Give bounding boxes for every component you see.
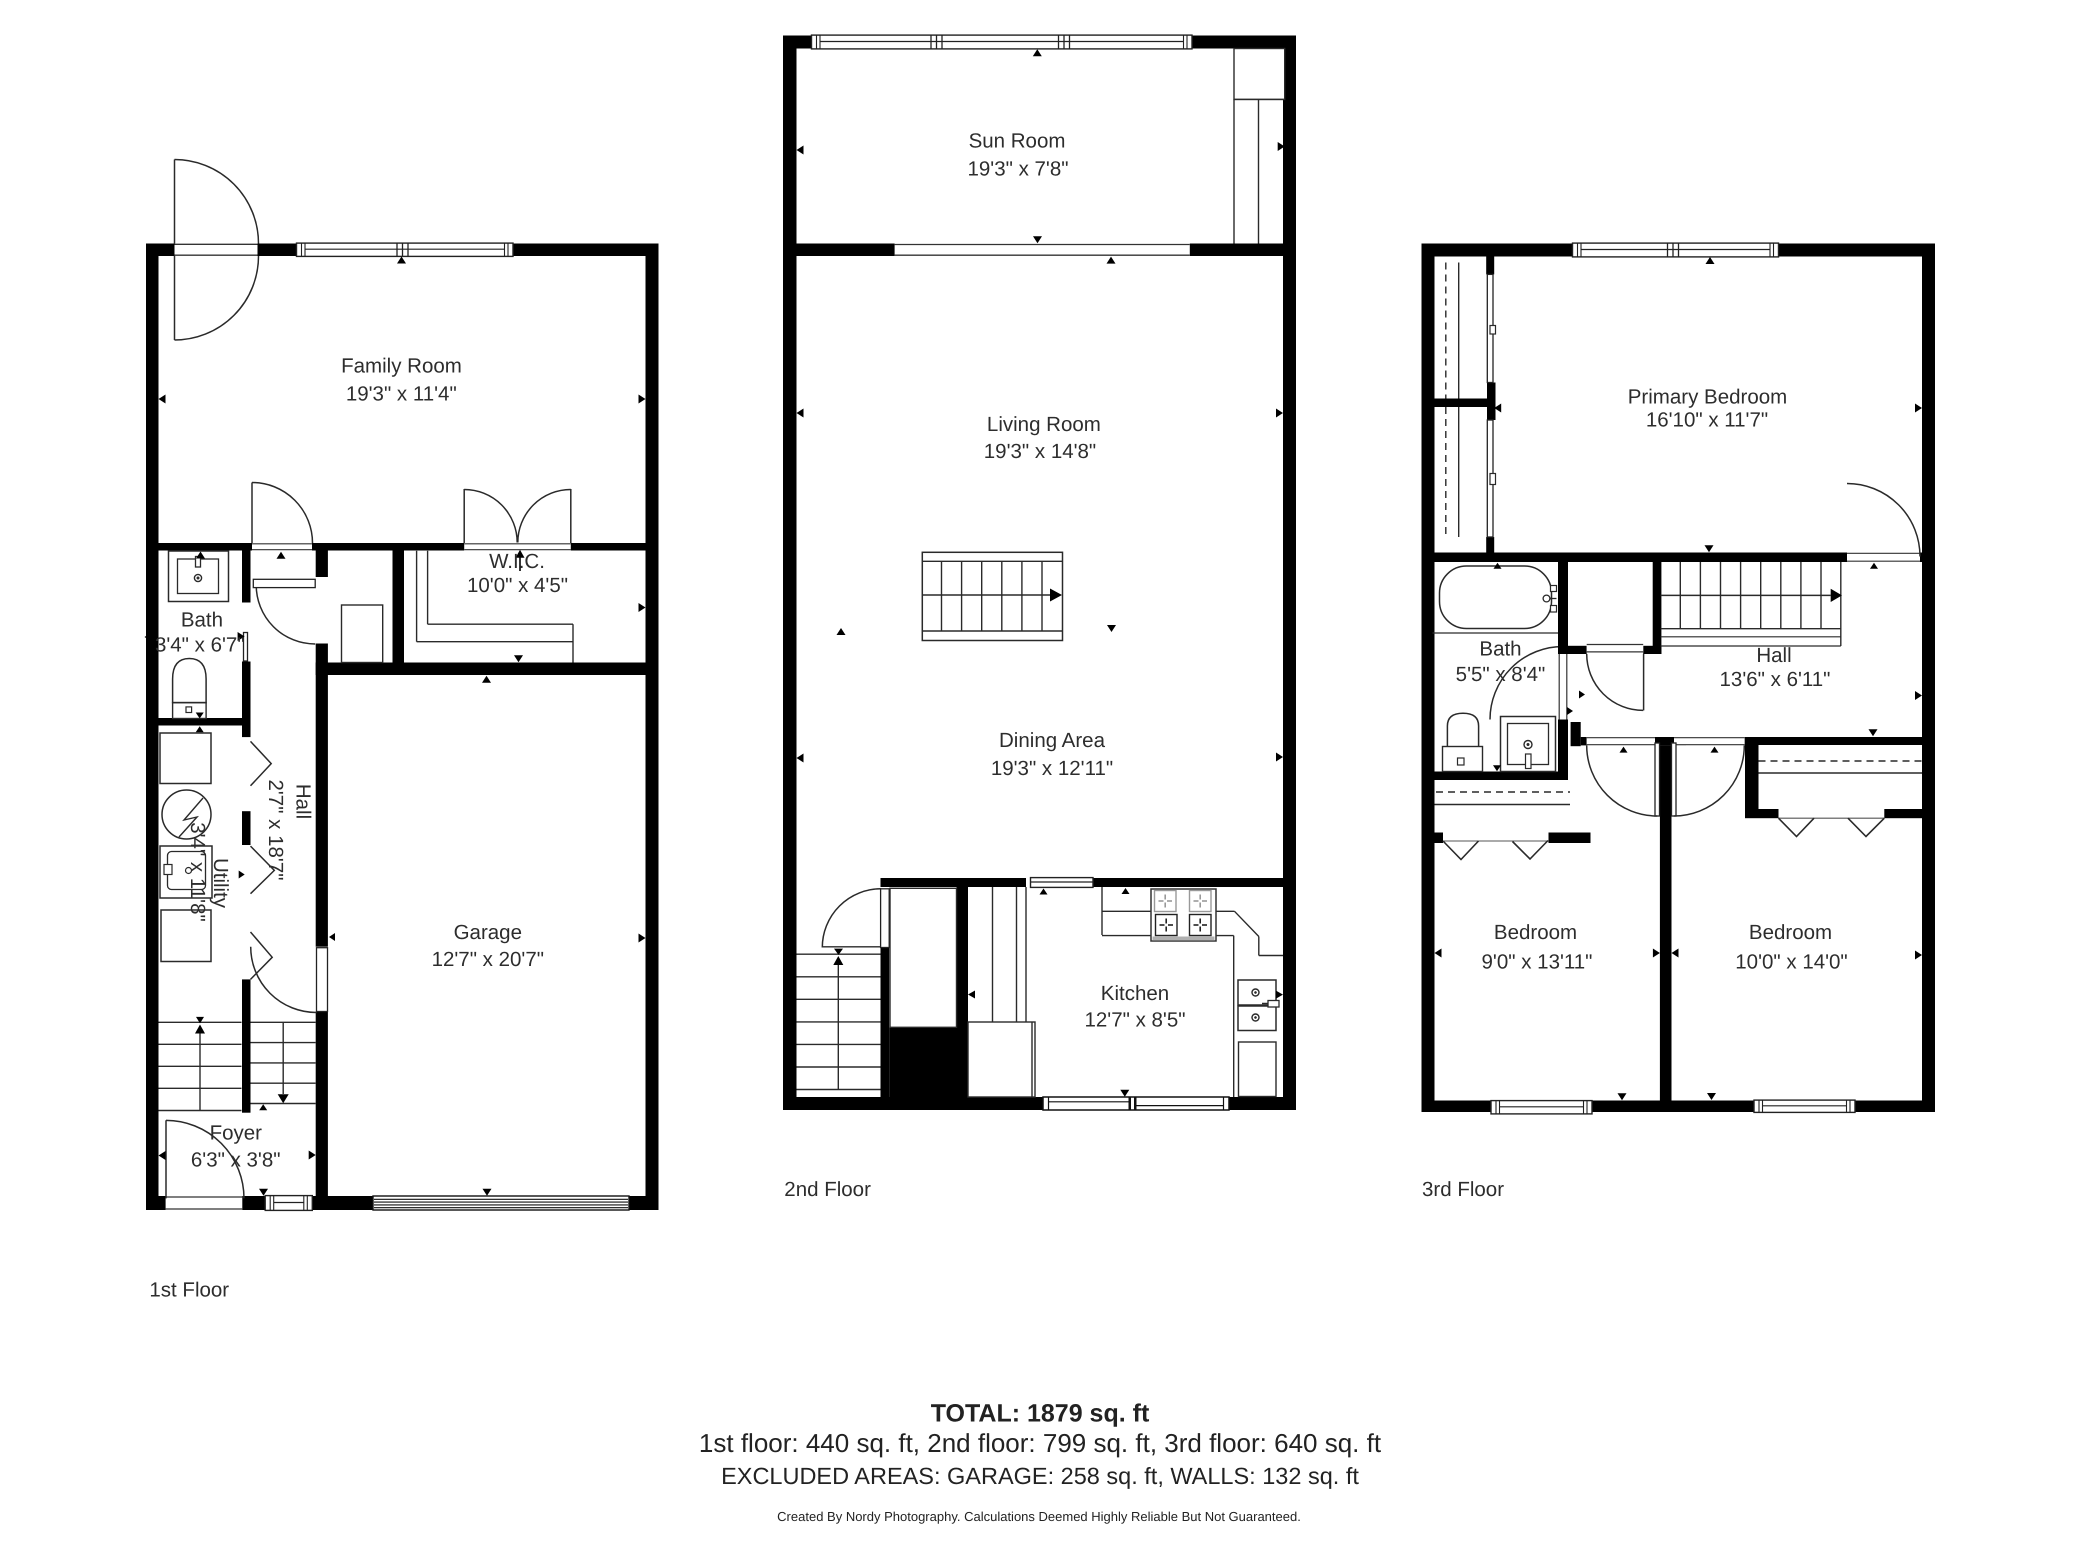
svg-text:TOTAL: 1879 sq. ft: TOTAL: 1879 sq. ft	[931, 1400, 1150, 1428]
svg-text:Hall: Hall	[1756, 644, 1791, 667]
svg-text:2nd Floor: 2nd Floor	[784, 1178, 871, 1201]
svg-text:Foyer: Foyer	[210, 1122, 263, 1145]
svg-text:10'0" x 4'5": 10'0" x 4'5"	[467, 574, 568, 597]
svg-text:W.I.C.: W.I.C.	[489, 550, 545, 573]
svg-text:2'7" x 18'7": 2'7" x 18'7"	[264, 779, 287, 880]
svg-text:Dining Area: Dining Area	[999, 729, 1106, 752]
svg-text:Bath: Bath	[181, 609, 223, 632]
svg-text:10'0" x 14'0": 10'0" x 14'0"	[1735, 951, 1847, 974]
svg-text:Utility: Utility	[209, 858, 232, 909]
svg-text:3'4" x 11'8": 3'4" x 11'8"	[186, 822, 209, 922]
svg-text:Primary Bedroom: Primary Bedroom	[1628, 386, 1788, 409]
svg-text:3'4" x 6'7": 3'4" x 6'7"	[155, 634, 245, 657]
svg-text:Bath: Bath	[1479, 638, 1521, 661]
svg-text:16'10" x 11'7": 16'10" x 11'7"	[1646, 409, 1768, 432]
svg-text:12'7" x 8'5": 12'7" x 8'5"	[1084, 1008, 1185, 1031]
svg-text:12'7" x 20'7": 12'7" x 20'7"	[432, 948, 544, 971]
svg-text:Living Room: Living Room	[987, 413, 1101, 436]
svg-text:Bedroom: Bedroom	[1494, 921, 1577, 944]
svg-text:EXCLUDED AREAS: GARAGE: 258 sq: EXCLUDED AREAS: GARAGE: 258 sq. ft, WALL…	[721, 1463, 1359, 1489]
svg-text:Garage: Garage	[454, 921, 522, 944]
svg-text:19'3" x 14'8": 19'3" x 14'8"	[984, 440, 1096, 463]
svg-text:Family Room: Family Room	[341, 355, 462, 378]
svg-text:Bedroom: Bedroom	[1749, 921, 1832, 944]
svg-text:1st Floor: 1st Floor	[149, 1279, 229, 1302]
svg-text:Sun Room: Sun Room	[969, 130, 1066, 153]
svg-text:9'0" x 13'11": 9'0" x 13'11"	[1482, 951, 1593, 974]
svg-text:19'3" x 12'11": 19'3" x 12'11"	[991, 757, 1113, 780]
svg-text:13'6" x 6'11": 13'6" x 6'11"	[1720, 668, 1831, 691]
svg-text:19'3" x 11'4": 19'3" x 11'4"	[346, 383, 457, 406]
svg-text:Kitchen: Kitchen	[1101, 982, 1169, 1005]
svg-text:1st floor: 440 sq. ft, 2nd flo: 1st floor: 440 sq. ft, 2nd floor: 799 sq…	[699, 1428, 1382, 1458]
svg-text:6'3" x 3'8": 6'3" x 3'8"	[191, 1149, 281, 1172]
svg-text:3rd Floor: 3rd Floor	[1422, 1178, 1504, 1201]
svg-text:19'3" x 7'8": 19'3" x 7'8"	[967, 158, 1068, 181]
svg-text:Hall: Hall	[292, 784, 315, 819]
svg-text:Created By Nordy Photography.: Created By Nordy Photography. Calculatio…	[777, 1509, 1301, 1524]
svg-text:5'5" x 8'4": 5'5" x 8'4"	[1456, 663, 1546, 686]
